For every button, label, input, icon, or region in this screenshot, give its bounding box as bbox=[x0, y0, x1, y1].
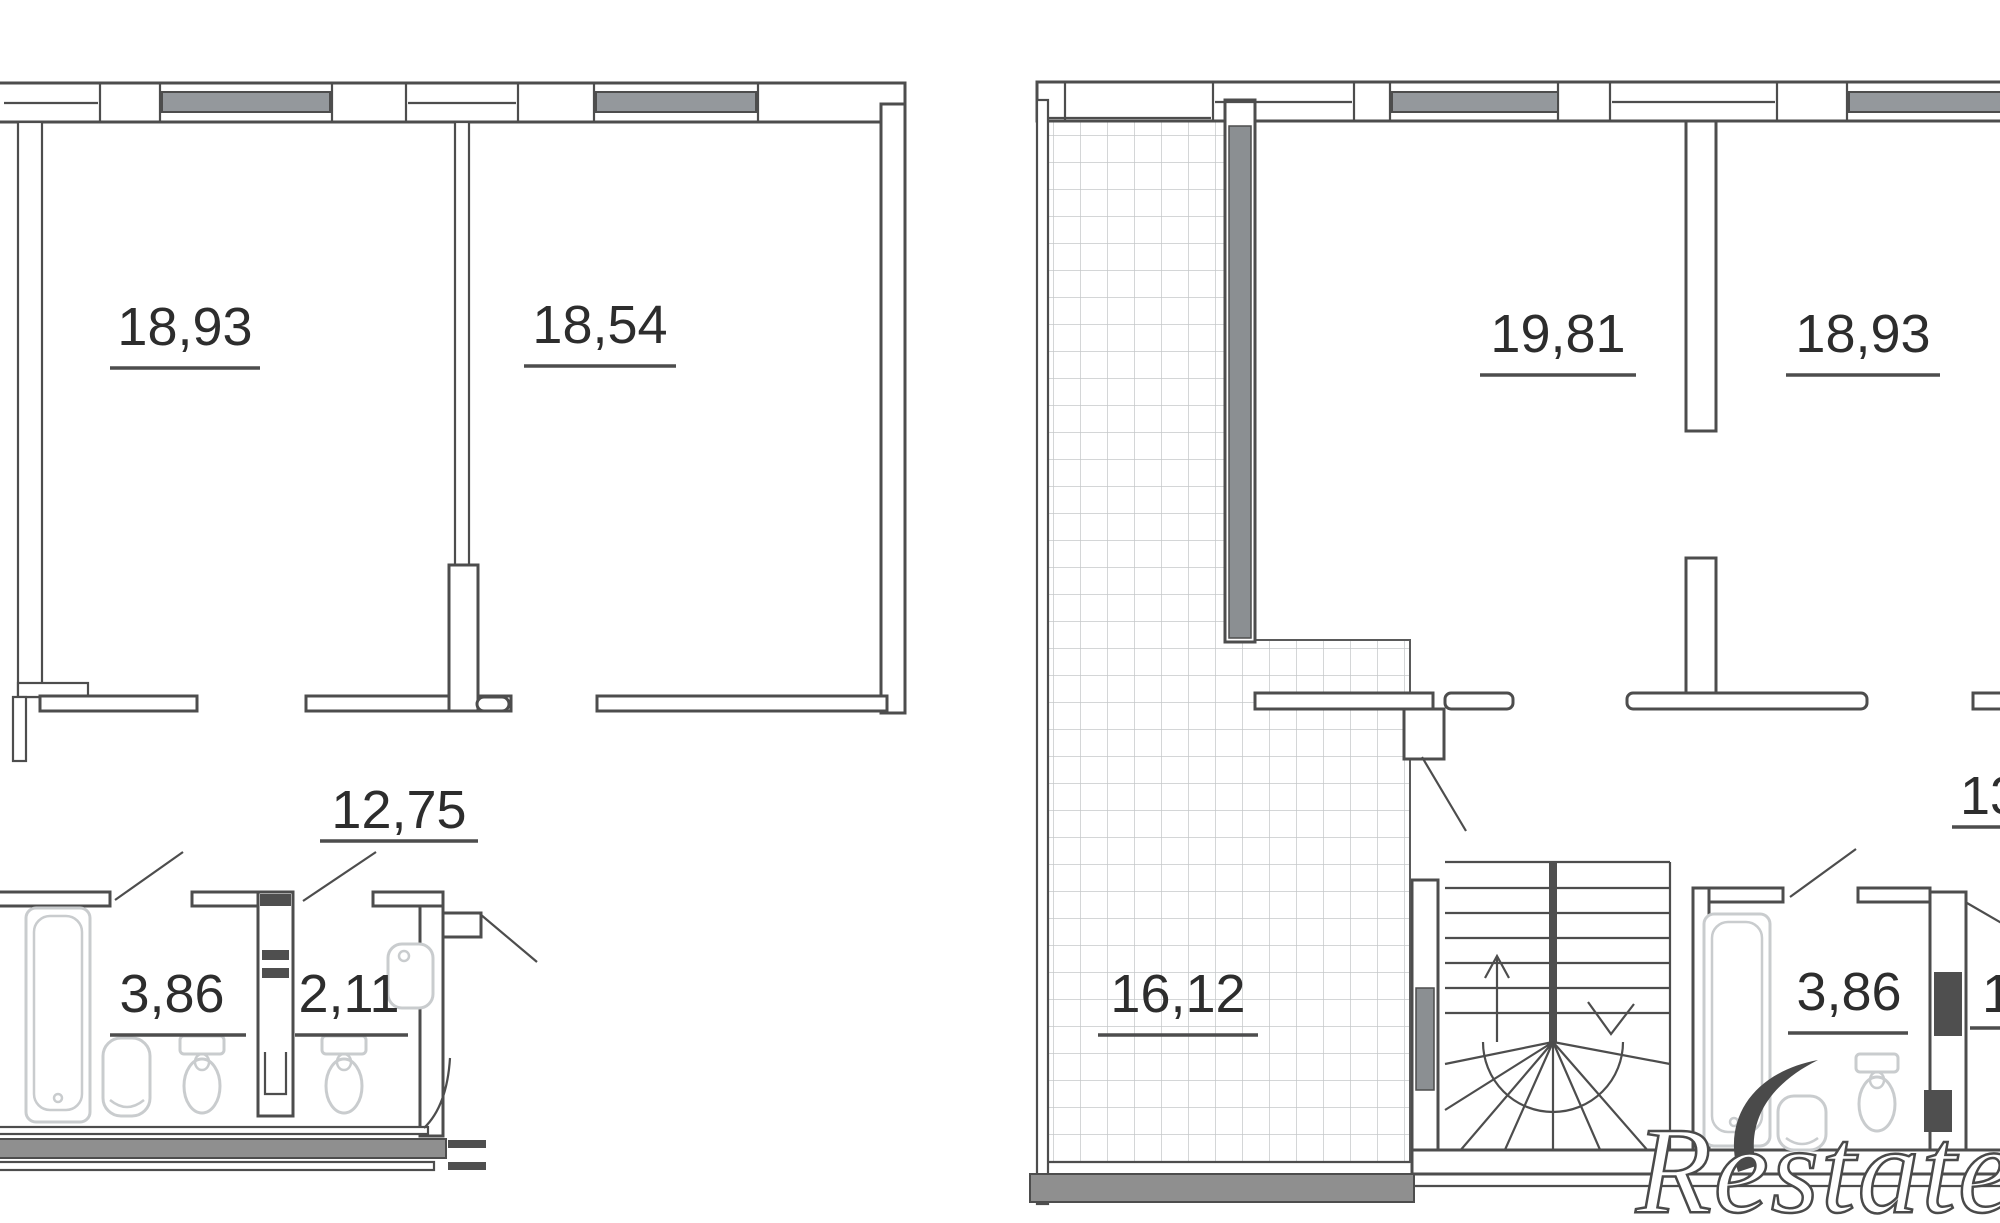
left-bottom-wall-line bbox=[0, 1127, 428, 1134]
room-area-label: 3,86 bbox=[119, 964, 224, 1024]
left-left-wall bbox=[18, 122, 42, 697]
right-mid-wall-c bbox=[1627, 693, 1867, 709]
room-area-label: 18,93 bbox=[117, 297, 252, 357]
left-plan: 18,93 18,54 12,75 3,86 2,11 bbox=[0, 83, 905, 1170]
floor-plan-canvas: 18,93 18,54 12,75 3,86 2,11 bbox=[0, 0, 2000, 1223]
left-bath-top-wall-b bbox=[192, 892, 258, 906]
right-entry-step bbox=[1404, 709, 1444, 759]
toilet-icon bbox=[322, 1036, 366, 1113]
door-swing bbox=[1967, 903, 2000, 925]
room-area-label: 3,86 bbox=[1796, 962, 1901, 1022]
stair-down-arrow bbox=[1588, 1002, 1634, 1034]
right-room-partition-lower bbox=[1686, 558, 1716, 708]
floor-plan-drawing: 18,93 18,54 12,75 3,86 2,11 bbox=[0, 0, 2000, 1223]
left-bottom-dash bbox=[448, 1140, 486, 1148]
left-bath-divider-block bbox=[262, 968, 289, 978]
right-room-partition-upper bbox=[1686, 121, 1716, 431]
door-swing bbox=[480, 914, 537, 962]
terrace-inner-wall-fill bbox=[1229, 126, 1251, 638]
room-area-label-clipped: 1 bbox=[1982, 964, 2000, 1024]
window-glass bbox=[162, 92, 330, 112]
washbasin-icon bbox=[103, 1038, 150, 1116]
door-swing bbox=[303, 852, 376, 901]
right-bath-top-wall-a bbox=[1709, 888, 1783, 902]
door-swing bbox=[115, 852, 183, 900]
right-plan: 19,81 18,93 16,12 3,86 13 1 bbox=[1030, 82, 2000, 1204]
terrace-bottom-wall bbox=[1030, 1174, 1414, 1202]
left-bottom-wall-heavy bbox=[0, 1139, 446, 1158]
left-bath-top-wall-c bbox=[373, 892, 443, 906]
door-swing bbox=[1422, 757, 1466, 831]
room-area-label: 2,11 bbox=[298, 964, 399, 1024]
room-area-label: 19,81 bbox=[1490, 304, 1625, 364]
room-area-label: 18,93 bbox=[1795, 304, 1930, 364]
left-bath-right-wall bbox=[420, 906, 443, 1136]
right-mid-wall-b bbox=[1445, 693, 1513, 709]
stair-treads bbox=[1445, 888, 1670, 1013]
left-room-partition-thick bbox=[449, 565, 478, 711]
terrace-outer-wall bbox=[1037, 100, 1048, 1204]
window-glass bbox=[1849, 92, 2000, 112]
window-glass bbox=[1392, 92, 1558, 112]
window-glass bbox=[596, 92, 756, 112]
bathtub-icon bbox=[26, 908, 90, 1122]
door-swing bbox=[1790, 849, 1856, 897]
left-bath-top-wall-a bbox=[0, 892, 110, 906]
left-entry-step bbox=[443, 913, 481, 937]
left-mid-wall-c bbox=[597, 696, 887, 711]
right-mid-wall-d bbox=[1973, 693, 2000, 709]
stair-left-wall-fill bbox=[1416, 988, 1434, 1090]
right-mid-wall-a bbox=[1255, 693, 1433, 709]
room-area-label: 12,75 bbox=[331, 780, 466, 840]
left-room-partition-thin bbox=[455, 122, 469, 568]
room-area-label: 18,54 bbox=[532, 295, 667, 355]
stair-stringer bbox=[1549, 862, 1557, 1042]
right-bath-door-block bbox=[1934, 972, 1962, 1036]
toilet-icon bbox=[180, 1036, 224, 1113]
left-room-partition-stub bbox=[477, 697, 509, 711]
left-bath-divider-block bbox=[262, 950, 289, 960]
left-plan-labels: 18,93 18,54 12,75 3,86 2,11 bbox=[110, 295, 676, 1035]
stair-up-arrow bbox=[1485, 956, 1509, 1042]
room-area-label: 16,12 bbox=[1110, 964, 1245, 1024]
right-bath-top-wall-b bbox=[1858, 888, 1930, 902]
left-right-wall bbox=[881, 104, 905, 713]
left-bath-divider bbox=[258, 892, 293, 1116]
left-left-wall-stub bbox=[13, 697, 26, 761]
left-mid-wall-a bbox=[40, 696, 197, 711]
room-area-label-clipped: 13 bbox=[1960, 766, 2000, 826]
watermark-brand: Restate bbox=[1635, 1102, 2000, 1223]
left-bottom-dash bbox=[448, 1162, 486, 1170]
left-bottom-wall-thin bbox=[0, 1162, 434, 1170]
left-bath-divider-block bbox=[260, 894, 291, 906]
